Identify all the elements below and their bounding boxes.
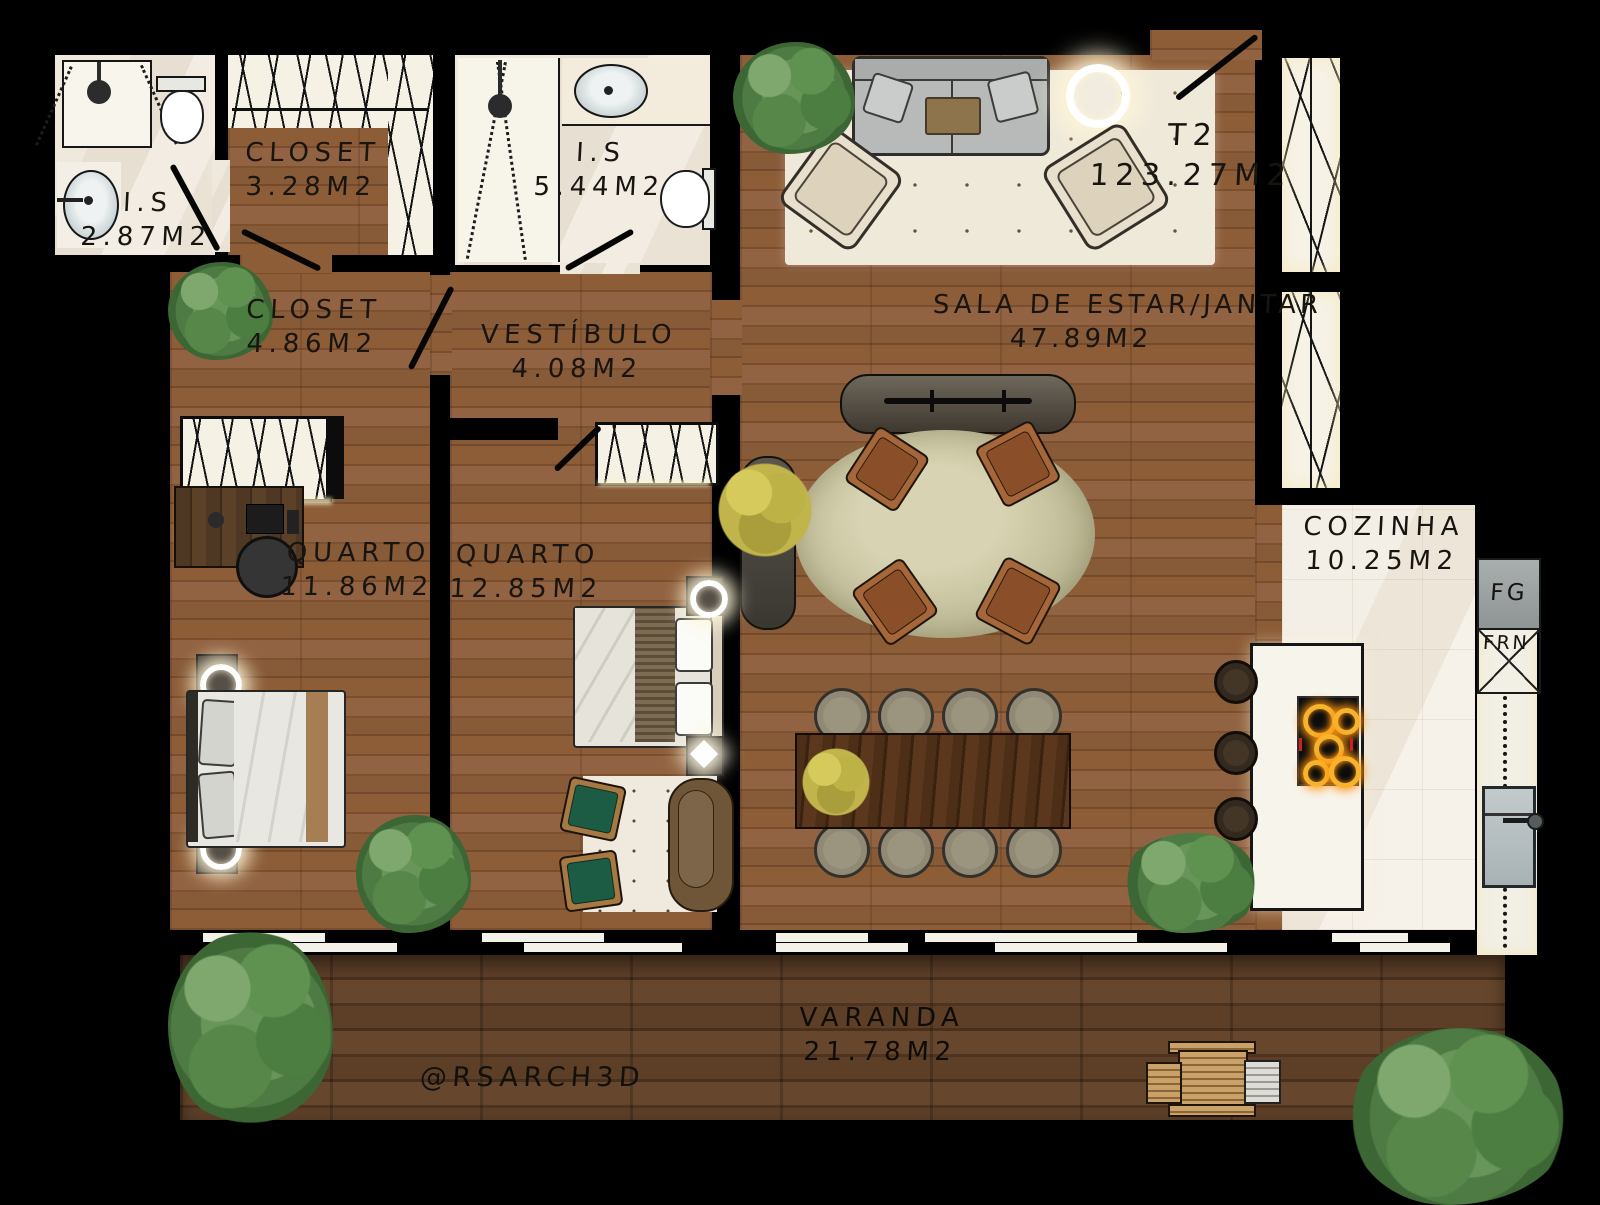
dining-chair bbox=[878, 822, 934, 878]
desk-speaker-icon bbox=[287, 510, 299, 534]
dining-chair-seat bbox=[887, 831, 925, 869]
bed bbox=[186, 690, 346, 848]
potted-plant bbox=[712, 452, 818, 568]
bar-stool-seat bbox=[1223, 669, 1249, 695]
room-label-varanda: VARANDA 21.78M2 bbox=[729, 1001, 1033, 1070]
room-area: 2.87M2 bbox=[0, 220, 297, 254]
dining-chair-seat bbox=[1015, 831, 1053, 869]
bar-stool-seat bbox=[1223, 806, 1249, 832]
accent-chair bbox=[559, 776, 627, 843]
dining-chair-seat bbox=[887, 697, 925, 735]
bed-headboard bbox=[188, 692, 198, 842]
bar-stool-seat bbox=[1223, 740, 1249, 766]
room-name: SALA DE ESTAR/JANTAR bbox=[932, 288, 1234, 322]
bed-duvet bbox=[575, 608, 635, 742]
dining-chair bbox=[814, 822, 870, 878]
dining-chair-seat bbox=[823, 697, 861, 735]
dining-chair bbox=[942, 822, 998, 878]
cooktop-control bbox=[1350, 738, 1353, 751]
accent-chair-seat bbox=[567, 784, 619, 834]
dining-chair bbox=[1006, 822, 1062, 878]
room-name: QUARTO bbox=[377, 538, 679, 572]
shower bbox=[62, 60, 152, 148]
ring-light bbox=[690, 580, 728, 618]
sofa-throw bbox=[925, 97, 981, 135]
sliding-door-kitchen bbox=[1360, 943, 1450, 952]
small-sofa-cushion bbox=[678, 790, 714, 888]
watermark: @RSARCH3D bbox=[419, 1062, 646, 1093]
room-name: CLOSET bbox=[163, 293, 465, 327]
room-area: 21.78M2 bbox=[729, 1035, 1031, 1069]
room-name: VESTÍBULO bbox=[428, 318, 730, 352]
room-name: CLOSET bbox=[162, 136, 464, 170]
potted-plant bbox=[798, 740, 874, 824]
bar-stool bbox=[1214, 660, 1258, 704]
wardrobe-glow bbox=[598, 481, 710, 486]
bar-stool bbox=[1214, 797, 1258, 841]
tree bbox=[1348, 1028, 1568, 1205]
lounge-chair-seat bbox=[985, 430, 1052, 498]
room-label-sala: SALA DE ESTAR/JANTAR 47.89M2 bbox=[930, 288, 1234, 357]
balcony-chair bbox=[1146, 1062, 1182, 1104]
sliding-door-kitchen bbox=[1332, 933, 1408, 942]
bed-pillow bbox=[675, 682, 713, 736]
small-sofa bbox=[668, 778, 734, 912]
burner-icon bbox=[1303, 704, 1337, 738]
accent-chair-seat bbox=[566, 857, 615, 905]
wardrobe-side-panel bbox=[326, 416, 344, 499]
oven: FRN bbox=[1477, 628, 1541, 694]
room-name: I.S bbox=[450, 136, 752, 170]
kitchen-sink bbox=[1482, 786, 1536, 888]
floor-plan: FG FRN I.S 2.87M2 CLOSET 3.28M2 I.S 5.44… bbox=[0, 0, 1600, 1205]
bed-knit-throw bbox=[635, 608, 675, 742]
shower-head-icon bbox=[488, 94, 512, 118]
unit-area: 123.27M2 bbox=[1040, 156, 1342, 196]
closet-rail-bar bbox=[232, 108, 428, 111]
wall bbox=[450, 418, 558, 440]
sliding-door-bedroom2 bbox=[524, 943, 682, 952]
room-label-vestibulo: VESTÍBULO 4.08M2 bbox=[426, 318, 730, 387]
dining-chair-seat bbox=[951, 831, 989, 869]
sliding-door-living bbox=[776, 933, 868, 942]
room-area: 5.44M2 bbox=[448, 170, 750, 204]
sliding-door-bedroom2 bbox=[482, 933, 604, 942]
burner-icon bbox=[1333, 708, 1360, 735]
wardrobe bbox=[595, 422, 719, 486]
faucet-knob bbox=[604, 86, 613, 95]
unit-label: T2 123.27M2 bbox=[1040, 116, 1344, 195]
burner-icon bbox=[1303, 760, 1330, 787]
room-area: 4.08M2 bbox=[426, 352, 728, 386]
bed-pillow bbox=[675, 618, 713, 672]
room-name: VARANDA bbox=[731, 1001, 1033, 1035]
sink-divider bbox=[1485, 813, 1533, 816]
hall-closet-divider-b bbox=[1310, 292, 1312, 488]
dining-chair-seat bbox=[823, 831, 861, 869]
console-table bbox=[840, 374, 1076, 434]
faucet-knob bbox=[1527, 813, 1544, 830]
room-label-cozinha: COZINHA 10.25M2 bbox=[1231, 510, 1535, 579]
sliding-door-living bbox=[776, 943, 908, 952]
room-area: 12.85M2 bbox=[375, 572, 677, 606]
tree bbox=[356, 815, 471, 933]
oven-label: FRN bbox=[1482, 632, 1530, 654]
bar-stool bbox=[1214, 731, 1258, 775]
fridge-label: FG bbox=[1478, 580, 1540, 606]
tree bbox=[168, 930, 333, 1125]
room-label-is-large: I.S 5.44M2 bbox=[448, 136, 752, 205]
sofa bbox=[852, 56, 1050, 156]
balcony-table-rail bbox=[1168, 1104, 1256, 1117]
bed-duvet bbox=[234, 692, 306, 842]
bed bbox=[573, 606, 724, 748]
console-handle bbox=[884, 398, 1032, 404]
room-area: 47.89M2 bbox=[930, 322, 1232, 356]
room-area: 4.86M2 bbox=[161, 327, 463, 361]
tree bbox=[1122, 833, 1260, 933]
bed-blanket bbox=[306, 692, 328, 842]
room-label-closet-small: CLOSET 3.28M2 bbox=[160, 136, 464, 205]
console-handle-tick bbox=[930, 390, 934, 412]
sliding-door-living bbox=[995, 943, 1227, 952]
laptop-icon bbox=[246, 504, 284, 534]
dining-chair-seat bbox=[1015, 697, 1053, 735]
accent-chair bbox=[558, 849, 623, 913]
cooktop-control bbox=[1299, 738, 1302, 751]
room-label-quarto2: QUARTO 12.85M2 bbox=[375, 538, 679, 607]
balcony-chair bbox=[1244, 1060, 1281, 1104]
room-name: COZINHA bbox=[1233, 510, 1535, 544]
desk-lamp-icon bbox=[208, 512, 224, 528]
burner-icon bbox=[1329, 756, 1361, 788]
dining-chair-seat bbox=[951, 697, 989, 735]
shower-arm bbox=[498, 60, 502, 98]
room-area: 3.28M2 bbox=[160, 170, 462, 204]
room-label-closet-hall: CLOSET 4.86M2 bbox=[161, 293, 465, 362]
unit-type: T2 bbox=[1042, 116, 1344, 156]
shower-head-icon bbox=[87, 80, 111, 104]
sliding-door-living bbox=[925, 933, 1137, 942]
console-handle-tick bbox=[1002, 390, 1006, 412]
room-area: 10.25M2 bbox=[1231, 544, 1533, 578]
